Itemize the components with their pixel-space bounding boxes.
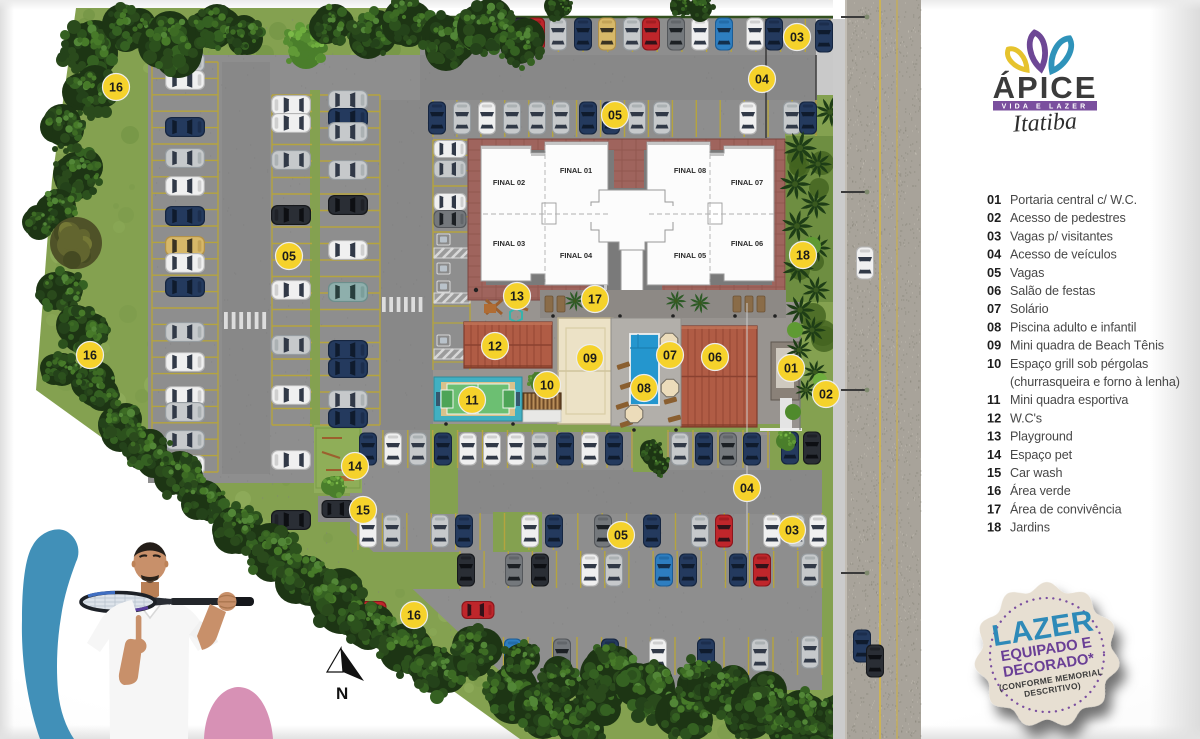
svg-text:13: 13: [510, 290, 524, 304]
svg-text:04: 04: [755, 73, 769, 87]
svg-text:12: 12: [987, 410, 1001, 425]
svg-text:Área verde: Área verde: [1010, 483, 1071, 498]
svg-text:05: 05: [608, 109, 622, 123]
svg-text:12: 12: [488, 340, 502, 354]
svg-text:FINAL 04: FINAL 04: [560, 251, 593, 260]
svg-text:07: 07: [663, 349, 677, 363]
svg-text:FINAL 03: FINAL 03: [493, 239, 525, 248]
svg-text:Mini quadra de Beach Tênis: Mini quadra de Beach Tênis: [1010, 339, 1164, 353]
svg-text:N: N: [336, 684, 348, 703]
svg-text:16: 16: [83, 349, 97, 363]
svg-text:W.C's: W.C's: [1010, 411, 1042, 425]
svg-text:FINAL 05: FINAL 05: [674, 251, 706, 260]
svg-text:Vagas: Vagas: [1010, 266, 1044, 280]
svg-text:16: 16: [109, 81, 123, 95]
svg-text:Área de convivência: Área de convivência: [1010, 501, 1122, 516]
svg-text:09: 09: [987, 338, 1001, 353]
svg-text:FINAL 07: FINAL 07: [731, 178, 763, 187]
svg-text:03: 03: [790, 31, 804, 45]
svg-text:08: 08: [987, 319, 1001, 334]
svg-text:13: 13: [987, 429, 1001, 444]
svg-text:04: 04: [740, 482, 754, 496]
svg-text:Vagas p/ visitantes: Vagas p/ visitantes: [1010, 229, 1113, 243]
svg-text:10: 10: [540, 379, 554, 393]
svg-text:04: 04: [987, 247, 1002, 262]
svg-text:01: 01: [987, 192, 1001, 207]
svg-text:01: 01: [784, 362, 798, 376]
svg-text:11: 11: [987, 392, 1001, 407]
svg-text:FINAL 01: FINAL 01: [560, 166, 592, 175]
svg-text:05: 05: [282, 250, 296, 264]
svg-text:18: 18: [987, 520, 1001, 535]
svg-text:03: 03: [987, 228, 1001, 243]
svg-text:FINAL 02: FINAL 02: [493, 178, 525, 187]
svg-text:ÁPICE: ÁPICE: [993, 70, 1098, 105]
svg-text:15: 15: [987, 465, 1001, 480]
svg-text:10: 10: [987, 356, 1001, 371]
svg-text:17: 17: [987, 501, 1001, 516]
svg-text:FINAL 06: FINAL 06: [731, 239, 763, 248]
svg-text:Solário: Solário: [1010, 302, 1049, 316]
svg-text:05: 05: [987, 265, 1001, 280]
svg-text:06: 06: [708, 351, 722, 365]
svg-text:16: 16: [987, 483, 1001, 498]
svg-text:11: 11: [465, 394, 478, 408]
svg-text:(churrasqueira e forno à lenha: (churrasqueira e forno à lenha): [1010, 375, 1180, 389]
svg-text:Jardins: Jardins: [1010, 521, 1050, 535]
svg-text:14: 14: [348, 460, 362, 474]
svg-text:Piscina adulto e infantil: Piscina adulto e infantil: [1010, 320, 1136, 334]
svg-text:14: 14: [987, 447, 1002, 462]
svg-text:07: 07: [987, 301, 1001, 316]
svg-text:Itatiba: Itatiba: [1011, 108, 1077, 137]
svg-text:03: 03: [785, 524, 799, 538]
svg-text:08: 08: [637, 382, 651, 396]
svg-text:02: 02: [819, 388, 833, 402]
svg-text:17: 17: [588, 293, 602, 307]
svg-text:Acesso de pedestres: Acesso de pedestres: [1010, 211, 1126, 225]
svg-text:06: 06: [987, 283, 1001, 298]
svg-text:FINAL 08: FINAL 08: [674, 166, 706, 175]
svg-text:Salão de festas: Salão de festas: [1010, 284, 1095, 298]
svg-text:18: 18: [796, 249, 810, 263]
svg-text:02: 02: [987, 210, 1001, 225]
svg-text:Espaço grill sob pérgolas: Espaço grill sob pérgolas: [1010, 357, 1148, 371]
svg-text:09: 09: [583, 352, 597, 366]
svg-text:Espaço pet: Espaço pet: [1010, 448, 1073, 462]
svg-text:Portaria central c/ W.C.: Portaria central c/ W.C.: [1010, 193, 1137, 207]
svg-text:Playground: Playground: [1010, 430, 1073, 444]
svg-text:Car wash: Car wash: [1010, 466, 1062, 480]
svg-text:05: 05: [614, 529, 628, 543]
svg-text:Acesso de veículos: Acesso de veículos: [1010, 248, 1117, 262]
svg-text:Mini quadra esportiva: Mini quadra esportiva: [1010, 393, 1128, 407]
